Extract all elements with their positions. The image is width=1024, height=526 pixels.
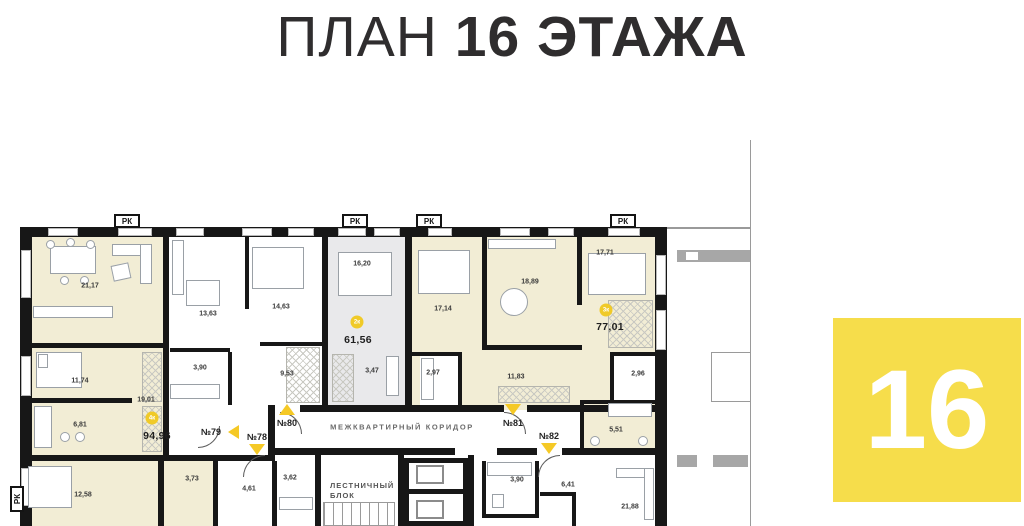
furniture-sink — [638, 436, 648, 446]
window — [374, 228, 400, 236]
furniture-kitchen-counter — [644, 468, 654, 520]
furniture-sofa — [140, 244, 152, 284]
window — [176, 228, 204, 236]
wall-corridor-bottom — [562, 448, 655, 455]
furniture-kitchen-counter — [488, 239, 556, 249]
wall-segment — [572, 492, 576, 526]
apartment-number: №78 — [247, 432, 267, 442]
room-area-label: 5,51 — [609, 427, 623, 434]
elevator-cab — [416, 465, 444, 484]
furniture-bed — [338, 252, 392, 296]
wall-segment — [482, 461, 486, 516]
furniture-chair — [86, 240, 95, 249]
rooms-count-label: 2к — [354, 319, 360, 325]
rk-marker: РК — [10, 486, 24, 512]
wall-segment — [610, 352, 655, 356]
furniture-chair — [46, 240, 55, 249]
door-direction-triangle — [541, 443, 557, 454]
rk-label: РК — [350, 217, 360, 226]
furniture-bed — [588, 253, 646, 295]
furniture-dining-table — [50, 246, 96, 274]
wall-segment — [32, 398, 132, 403]
wall-segment — [163, 237, 169, 455]
room-area-label: 21,88 — [621, 504, 639, 511]
furniture-bathtub — [421, 358, 434, 400]
neighbor-shaft — [711, 352, 751, 402]
room-area-label: 3,90 — [510, 477, 524, 484]
wall-segment — [580, 400, 584, 453]
room-area-label: 17,71 — [596, 250, 614, 257]
rk-marker: РК — [610, 214, 636, 228]
wall-segment — [213, 461, 218, 526]
wall-segment — [610, 352, 614, 405]
room-area-label: 3,47 — [365, 368, 379, 375]
window — [656, 255, 666, 295]
wall-segment — [170, 348, 230, 352]
furniture-bed — [418, 250, 470, 294]
furniture-bathtub — [279, 497, 313, 510]
wall-segment — [468, 455, 474, 526]
room-area-label: 3,73 — [185, 476, 199, 483]
furniture-kitchen-counter — [33, 306, 113, 318]
furniture-round-table — [500, 288, 528, 316]
floor-number-badge: 16 — [833, 318, 1021, 502]
room-area-label: 13,63 — [199, 311, 217, 318]
room-area-label: 11,83 — [507, 374, 524, 381]
window — [21, 356, 31, 396]
elevator-cab — [416, 500, 444, 519]
wall-segment — [577, 237, 582, 305]
door-arc — [538, 455, 560, 477]
furniture-dining-table — [186, 280, 220, 306]
wall-segment — [482, 237, 487, 347]
wall-segment — [32, 343, 163, 348]
window — [656, 310, 666, 350]
window — [242, 228, 272, 236]
rooms-count-badge: 3к — [600, 304, 613, 317]
stairwell-label-line2: БЛОК — [330, 491, 394, 501]
room-area-label: 18,89 — [521, 279, 539, 286]
wall-segment — [272, 461, 277, 526]
apartment-number: №80 — [277, 418, 297, 428]
furniture-chair — [66, 238, 75, 247]
furniture-kitchen-counter — [172, 240, 184, 295]
furniture-bed — [252, 247, 304, 289]
furniture-bed — [28, 466, 72, 508]
wall-corridor-top — [300, 405, 504, 412]
door-direction-triangle — [249, 444, 265, 455]
wall-segment — [228, 352, 232, 405]
furniture-pillow — [38, 354, 48, 368]
wall-segment — [260, 342, 322, 346]
elevator-divider — [404, 489, 468, 494]
window — [608, 228, 640, 236]
wall-segment — [482, 345, 582, 350]
apartment-total-area: 61,56 — [344, 334, 372, 346]
wall-corridor-bottom — [275, 448, 455, 455]
wardrobe-hatch — [332, 354, 354, 402]
wall-segment — [412, 352, 462, 356]
title-prefix: ПЛАН — [276, 5, 438, 69]
room-area-label: 4,61 — [242, 486, 256, 493]
window — [338, 228, 366, 236]
furniture-bathtub — [487, 462, 532, 476]
corridor-label: МЕЖКВАРТИРНЫЙ КОРИДОР — [330, 423, 474, 432]
floor-number: 16 — [865, 354, 990, 466]
furniture-bathtub — [386, 356, 399, 396]
staircase — [323, 502, 395, 526]
furniture-sink — [60, 432, 70, 442]
rooms-count-badge: 2к — [351, 316, 364, 329]
stairwell-label: ЛЕСТНИЧНЫЙ БЛОК — [330, 481, 394, 501]
rooms-count-label: 3к — [603, 307, 609, 313]
neighbor-wall-line — [667, 227, 750, 229]
wardrobe-hatch — [142, 352, 162, 402]
room-area-label: 16,20 — [353, 261, 371, 268]
rooms-count-badge: 4к — [146, 412, 159, 425]
wall-segment — [405, 237, 412, 407]
stairwell-label-line1: ЛЕСТНИЧНЫЙ — [330, 481, 394, 491]
window — [500, 228, 530, 236]
room-area-label: 6,41 — [561, 482, 575, 489]
wall-corridor-end — [268, 405, 275, 455]
room-area-label: 6,81 — [73, 422, 87, 429]
wall-segment — [315, 455, 321, 526]
rk-label: РК — [424, 217, 434, 226]
furniture-bathtub — [608, 403, 652, 417]
rk-label: РК — [13, 494, 22, 504]
room-area-label: 14,63 — [272, 304, 290, 311]
window — [48, 228, 78, 236]
apartment-number: №81 — [503, 418, 523, 428]
furniture-bathtub — [34, 406, 52, 448]
wall-corridor-bottom — [497, 448, 537, 455]
door-direction-triangle — [279, 404, 295, 415]
neighbor-wall — [677, 455, 697, 467]
neighbor-wall — [713, 455, 748, 467]
apartment-total-area: 77,01 — [596, 321, 624, 333]
room-area-label: 9,53 — [280, 371, 294, 378]
apartment-number: №82 — [539, 431, 559, 441]
wall-segment — [540, 492, 572, 496]
rooms-count-label: 4к — [149, 415, 155, 421]
window — [288, 228, 314, 236]
wall-segment — [482, 514, 539, 518]
room-area-label: 12,58 — [74, 492, 92, 499]
window — [548, 228, 574, 236]
furniture-chair — [60, 276, 69, 285]
rk-marker: РК — [416, 214, 442, 228]
furniture-sink — [590, 436, 600, 446]
apartment-total-area: 94,96 — [143, 430, 171, 442]
door-direction-triangle — [228, 425, 239, 439]
neighbor-boundary-line — [750, 140, 751, 526]
wall-segment — [322, 237, 328, 407]
wall-segment — [458, 352, 462, 405]
window — [118, 228, 152, 236]
furniture-toilet — [492, 494, 504, 508]
apartment-number: №79 — [201, 427, 221, 437]
room-area-label: 11,74 — [71, 378, 88, 385]
loggia-2-96-area — [612, 356, 655, 405]
wall-segment — [245, 237, 249, 309]
window — [21, 250, 31, 298]
room-area-label: 3,90 — [193, 365, 207, 372]
window — [428, 228, 452, 236]
neighbor-wall-gap — [686, 252, 698, 260]
room-area-label: 19,01 — [137, 397, 155, 404]
wall-segment — [32, 455, 275, 461]
room-area-label: 21,17 — [81, 283, 99, 290]
rk-label: РК — [122, 217, 132, 226]
title-floor: 16 ЭТАЖА — [455, 5, 748, 69]
rk-marker: РК — [342, 214, 368, 228]
page-title: ПЛАН 16 ЭТАЖА — [0, 4, 1024, 70]
room-area-label: 2,96 — [631, 371, 645, 378]
room-area-label: 17,14 — [434, 306, 452, 313]
room-area-label: 3,62 — [283, 475, 297, 482]
rk-label: РК — [618, 217, 628, 226]
rk-marker: РК — [114, 214, 140, 228]
door-direction-triangle — [505, 404, 521, 415]
wardrobe-hatch — [498, 386, 570, 403]
furniture-bathtub — [170, 384, 220, 399]
floor-plan-page: ПЛАН 16 ЭТАЖА — [0, 0, 1024, 526]
furniture-sink — [75, 432, 85, 442]
room-area-label: 2,97 — [426, 370, 440, 377]
wall-segment — [158, 461, 164, 526]
